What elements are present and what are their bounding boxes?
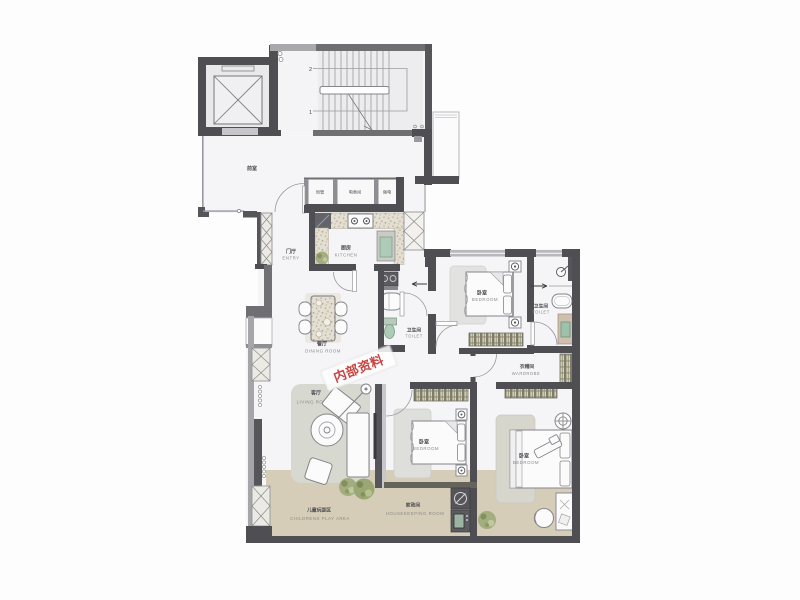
svg-text:门厅: 门厅	[286, 248, 296, 255]
svg-text:BEDROOM: BEDROOM	[413, 446, 439, 451]
svg-text:2: 2	[309, 67, 312, 73]
svg-text:前室: 前室	[247, 165, 257, 172]
svg-text:厨房: 厨房	[341, 245, 351, 252]
svg-text:客厅: 客厅	[310, 390, 321, 397]
svg-text:HOUSEKEEPING ROOM: HOUSEKEEPING ROOM	[386, 511, 445, 516]
svg-text:卫生间: 卫生间	[407, 327, 422, 334]
svg-text:卧室: 卧室	[519, 453, 529, 460]
svg-text:TOILET: TOILET	[532, 310, 550, 315]
svg-text:家政间: 家政间	[406, 502, 421, 509]
svg-text:餐厅: 餐厅	[316, 341, 327, 348]
svg-text:卧室: 卧室	[419, 439, 429, 446]
svg-text:电表间: 电表间	[349, 189, 362, 196]
svg-text:CHILDRENS PLAY AREA: CHILDRENS PLAY AREA	[290, 516, 350, 521]
svg-text:卫生间: 卫生间	[534, 303, 549, 310]
svg-text:WARDROBE: WARDROBE	[512, 371, 541, 376]
svg-text:DINING ROOM: DINING ROOM	[305, 349, 341, 354]
svg-text:TOILET: TOILET	[405, 334, 423, 339]
svg-text:BEDROOM: BEDROOM	[472, 297, 498, 302]
svg-text:ENTRY: ENTRY	[282, 256, 299, 261]
svg-text:1: 1	[309, 110, 312, 116]
svg-text:衣帽间: 衣帽间	[520, 363, 535, 370]
svg-text:强电: 强电	[383, 189, 392, 196]
svg-text:KITCHEN: KITCHEN	[335, 253, 358, 258]
svg-text:BEDROOM: BEDROOM	[513, 460, 539, 465]
svg-text:儿童玩耍区: 儿童玩耍区	[306, 507, 331, 514]
svg-text:同管: 同管	[316, 189, 324, 196]
svg-text:卧室: 卧室	[477, 290, 487, 297]
